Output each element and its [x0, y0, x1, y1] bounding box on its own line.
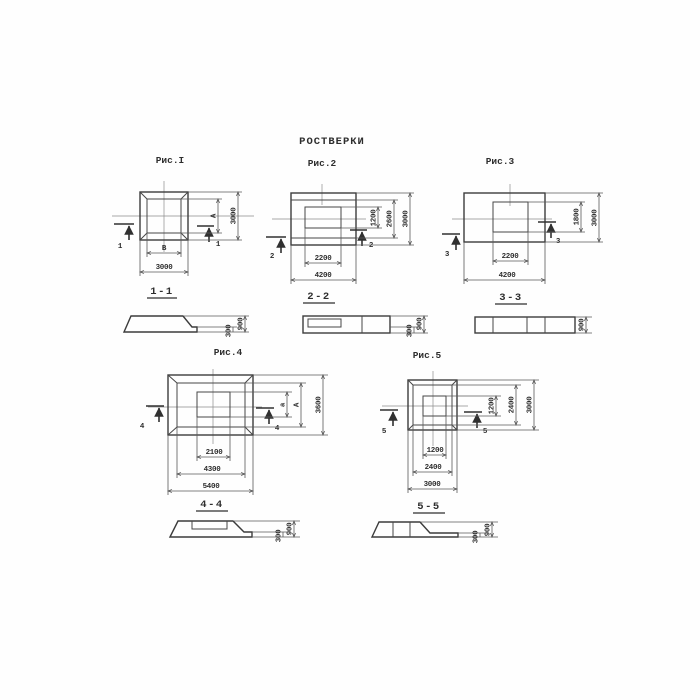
fig2-label: Рис.2: [308, 158, 337, 169]
fig4-section-title: 4-4: [200, 499, 223, 511]
grillage-drawing-sheet: РОСТВЕРКИ Рис.I 1 1 A 3000 B: [0, 0, 700, 700]
fig1-dim-inner-v-label: A: [211, 213, 219, 218]
section-4-4: 300 900: [170, 521, 300, 542]
fig5-chamfer: [408, 380, 413, 385]
fig4-chamfer: [168, 375, 177, 383]
fig5-section-title: 5-5: [417, 501, 440, 513]
fig1-chamfer: [140, 192, 147, 199]
fig5-section-mark-label-left: 5: [382, 428, 387, 436]
fig4-label: Рис.4: [214, 347, 243, 358]
fig5-dim-v2-label: 2400: [509, 396, 517, 414]
fig5-dim-h3-label: 3000: [424, 481, 442, 489]
fig2-dim-h2-label: 4200: [315, 272, 333, 280]
fig5-plan: Рис.5 5 5 1200 2400 3000 1200: [380, 350, 539, 513]
fig3-section-mark-label-left: 3: [445, 251, 450, 259]
section-2-2-total-label: 900: [417, 317, 425, 330]
fig2-section-title: 2-2: [307, 291, 330, 303]
section-4-4-edge-label: 300: [276, 529, 284, 542]
fig3-section-title: 3-3: [499, 292, 522, 304]
fig1-dim-outer-h-label: 3000: [156, 264, 174, 272]
fig4-section-mark-label-right: 4: [275, 425, 280, 433]
fig5-section-mark-label-right: 5: [483, 428, 488, 436]
technical-drawing-canvas: РОСТВЕРКИ Рис.I 1 1 A 3000 B: [0, 0, 700, 700]
sheet-title: РОСТВЕРКИ: [299, 136, 365, 148]
fig2-inner-outline: [305, 207, 341, 228]
fig5-dim-h2-label: 2400: [425, 464, 443, 472]
fig4-section-mark-label-left: 4: [140, 423, 145, 431]
fig1-section-mark-label-left: 1: [118, 243, 123, 251]
section-5-5-profile: [372, 522, 458, 537]
fig5-dim-v1-label: 1200: [489, 397, 497, 415]
section-5-5: 300 900: [372, 522, 498, 543]
fig3-label: Рис.3: [486, 156, 515, 167]
section-1-1-total-label: 900: [238, 317, 246, 330]
fig4-dim-v2-label: A: [294, 402, 302, 407]
fig4-outer-outline: [168, 375, 253, 435]
section-3-3-total-label: 900: [579, 318, 587, 331]
section-4-4-total-label: 900: [287, 522, 295, 535]
section-3-3-profile: [475, 317, 575, 333]
fig5-dim-v3-label: 3000: [527, 396, 535, 414]
fig4-dim-v3-label: 3600: [316, 396, 324, 414]
fig1-chamfer: [181, 233, 188, 240]
fig2-section-mark-label-right: 2: [369, 242, 374, 250]
section-5-5-edge-label: 300: [473, 530, 481, 543]
fig4-inner-outline: [197, 392, 230, 417]
fig5-chamfer: [408, 425, 413, 430]
fig3-inner-outline: [493, 202, 528, 232]
fig5-dim-h1-label: 1200: [427, 447, 445, 455]
fig1-chamfer: [140, 233, 147, 240]
fig4-chamfer: [245, 427, 253, 435]
fig5-chamfer: [452, 380, 457, 385]
fig2-dim-v2-label: 2600: [387, 210, 395, 228]
fig4-dim-h1-label: 2100: [206, 449, 224, 457]
fig1-chamfer: [181, 192, 188, 199]
section-2-2: 300 900: [303, 316, 428, 337]
fig5-outer-outline: [408, 380, 457, 430]
fig2-section-mark-label-left: 2: [270, 253, 275, 261]
section-5-5-total-label: 900: [485, 523, 493, 536]
fig3-dim-h2-label: 4200: [499, 272, 517, 280]
fig4-chamfer: [245, 375, 253, 383]
fig3-outer-outline: [464, 193, 545, 242]
fig3-dim-v1-label: 1800: [574, 208, 582, 226]
fig4-dim-h3-label: 5400: [203, 483, 221, 491]
section-1-1: 300 900: [124, 316, 249, 337]
fig2-plan: Рис.2 2 2 1200 2600 3000 2200 42: [266, 158, 414, 303]
fig1-plan: Рис.I 1 1 A 3000 B 3000 1-1: [112, 155, 254, 298]
fig1-section-mark-label-right: 1: [216, 241, 221, 249]
fig3-dim-v2-label: 3000: [592, 209, 600, 227]
fig1-label: Рис.I: [156, 155, 185, 166]
fig4-chamfer: [168, 427, 177, 435]
fig4-dim-h2-label: 4300: [204, 466, 222, 474]
fig4-middle-outline: [177, 383, 245, 427]
fig3-dim-h1-label: 2200: [502, 253, 520, 261]
fig5-label: Рис.5: [413, 350, 442, 361]
fig2-dim-h1-label: 2200: [315, 255, 333, 263]
section-2-2-edge-label: 300: [407, 324, 415, 337]
fig1-dim-outer-v-label: 3000: [231, 207, 239, 225]
section-4-4-recess: [192, 521, 227, 529]
fig1-dim-inner-h-label: B: [162, 245, 167, 253]
fig4-plan: Рис.4 4 4 a A 3600 2100: [140, 347, 328, 511]
section-1-1-edge-label: 300: [226, 324, 234, 337]
fig5-chamfer: [452, 425, 457, 430]
fig4-dim-v1-label: a: [280, 402, 288, 407]
section-1-1-profile: [124, 316, 197, 332]
fig3-plan: Рис.3 3 3 1800 3000 2200 4200 3-3: [442, 156, 603, 304]
fig2-dim-v1-label: 1200: [371, 209, 379, 227]
fig1-section-title: 1-1: [150, 286, 173, 298]
fig2-dim-v3-label: 3000: [403, 210, 411, 228]
section-2-2-recess: [308, 319, 341, 327]
section-3-3: 900: [475, 317, 592, 333]
